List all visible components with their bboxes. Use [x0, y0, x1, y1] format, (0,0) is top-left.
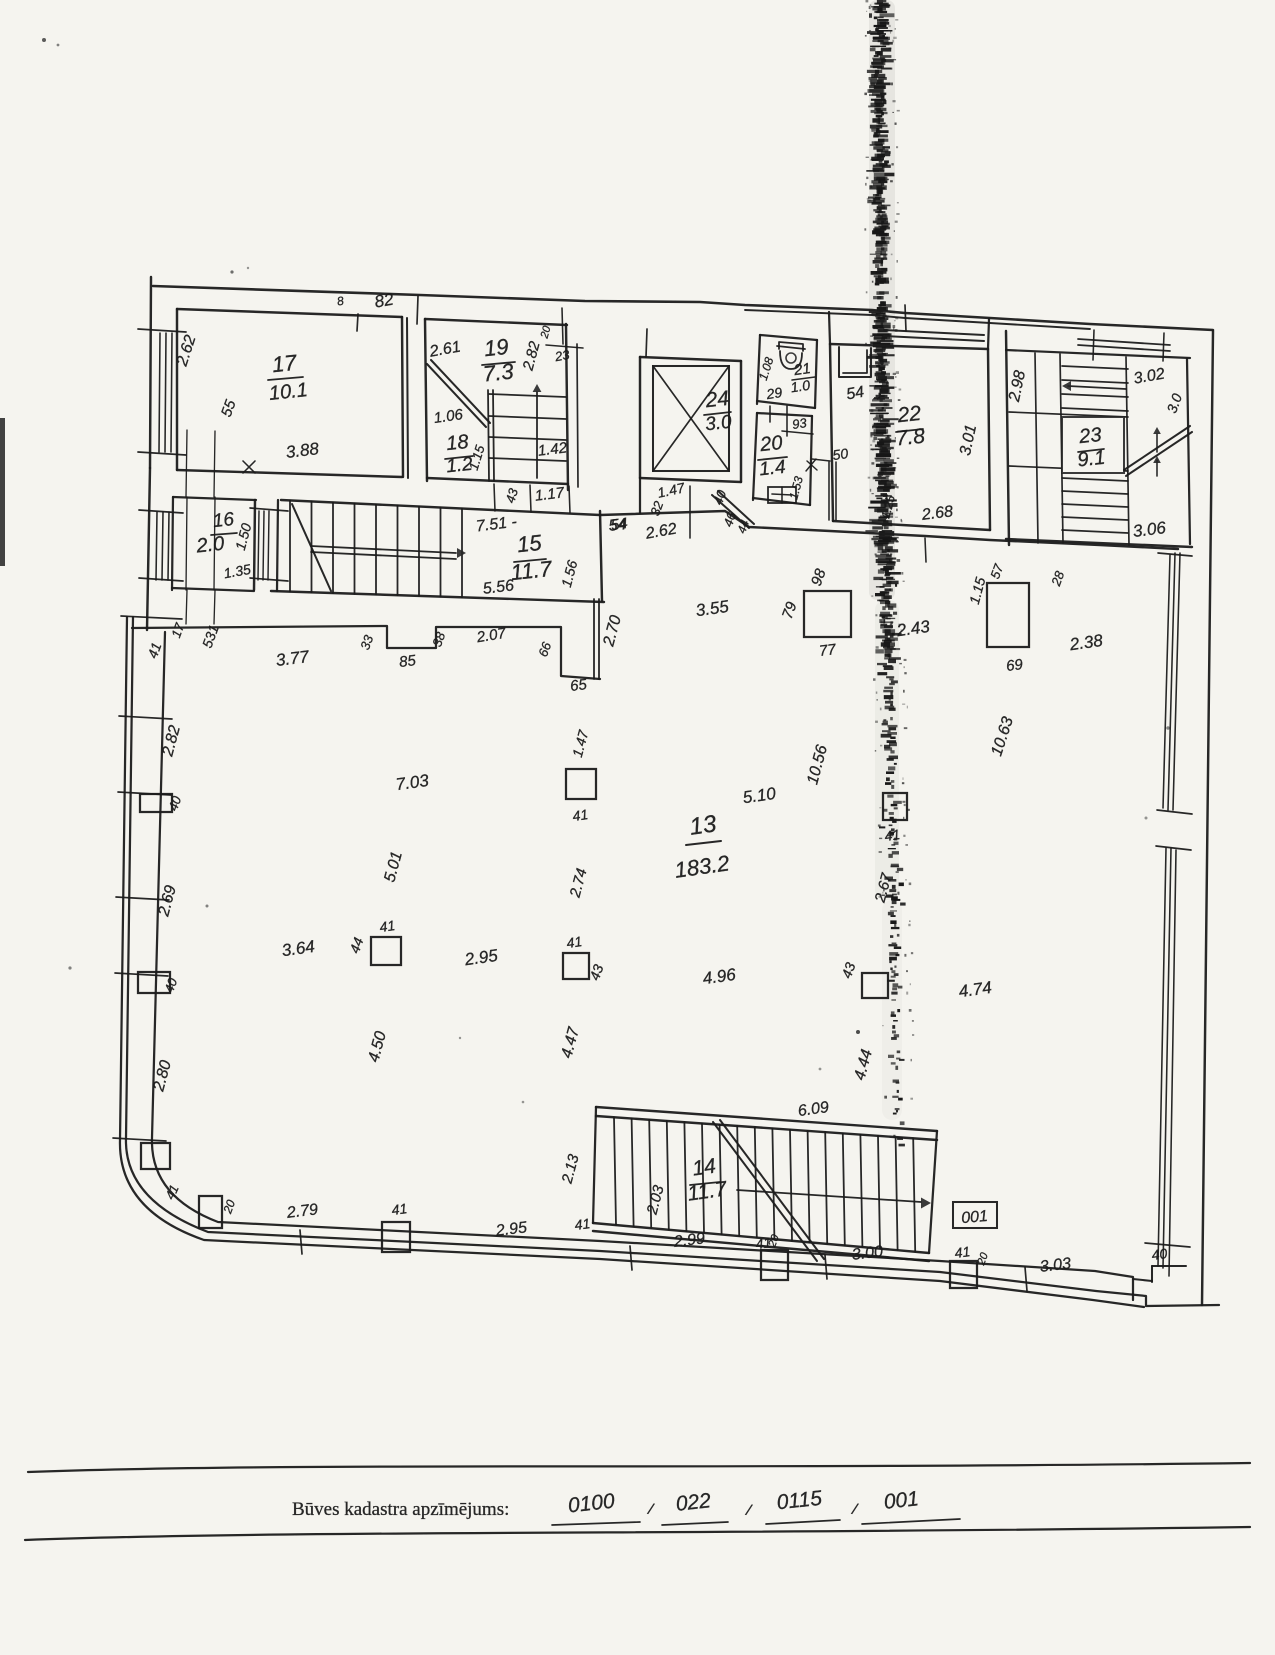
- svg-text:15: 15: [516, 530, 544, 558]
- svg-text:41: 41: [378, 917, 396, 935]
- svg-text:3.88: 3.88: [285, 439, 321, 462]
- svg-text:17: 17: [271, 350, 299, 378]
- svg-text:23: 23: [1077, 424, 1102, 448]
- svg-text:18: 18: [445, 431, 469, 455]
- svg-text:54: 54: [610, 515, 629, 534]
- svg-text:40: 40: [1151, 1245, 1169, 1263]
- svg-text:85: 85: [398, 652, 417, 671]
- svg-text:41: 41: [565, 933, 583, 951]
- svg-text:1.0: 1.0: [790, 377, 812, 396]
- svg-text:77: 77: [818, 641, 837, 660]
- svg-text:2.0: 2.0: [194, 533, 225, 558]
- svg-text:001: 001: [883, 1487, 920, 1514]
- svg-text:50: 50: [831, 445, 849, 463]
- svg-text:10.1: 10.1: [268, 379, 309, 405]
- svg-text:82: 82: [373, 289, 395, 311]
- svg-text:1.4: 1.4: [758, 457, 786, 481]
- svg-text:Būves kadastra apzīmējums:: Būves kadastra apzīmējums:: [292, 1499, 509, 1520]
- svg-text:022: 022: [675, 1489, 713, 1516]
- svg-text:54: 54: [845, 384, 866, 404]
- svg-text:20: 20: [758, 432, 783, 456]
- svg-text:21: 21: [792, 360, 812, 379]
- svg-text:9.1: 9.1: [1076, 447, 1106, 472]
- svg-text:3.06: 3.06: [1132, 518, 1168, 541]
- svg-text:14: 14: [691, 1155, 717, 1181]
- svg-text:13: 13: [688, 810, 719, 841]
- svg-text:41: 41: [391, 1200, 408, 1218]
- svg-text:1.42: 1.42: [537, 439, 569, 460]
- svg-text:29: 29: [764, 384, 783, 402]
- svg-text:1.17: 1.17: [534, 484, 566, 505]
- svg-text:41: 41: [571, 806, 589, 824]
- svg-text:0115: 0115: [776, 1487, 824, 1515]
- svg-text:24: 24: [704, 387, 731, 412]
- svg-text:11.7: 11.7: [509, 556, 553, 585]
- svg-text:3.77: 3.77: [275, 647, 311, 670]
- svg-text:0100: 0100: [567, 1490, 616, 1518]
- svg-text:65: 65: [569, 676, 588, 695]
- svg-text:001: 001: [961, 1208, 989, 1227]
- svg-text:7.3: 7.3: [482, 358, 516, 386]
- svg-text:41: 41: [954, 1243, 971, 1261]
- svg-text:69: 69: [1005, 656, 1024, 675]
- svg-text:19: 19: [483, 334, 510, 361]
- svg-text:93: 93: [791, 415, 808, 432]
- svg-text:41: 41: [574, 1215, 591, 1233]
- svg-text:41: 41: [883, 826, 901, 844]
- svg-text:7.8: 7.8: [895, 425, 927, 451]
- svg-text:22: 22: [896, 402, 923, 427]
- svg-text:3.0: 3.0: [704, 412, 733, 436]
